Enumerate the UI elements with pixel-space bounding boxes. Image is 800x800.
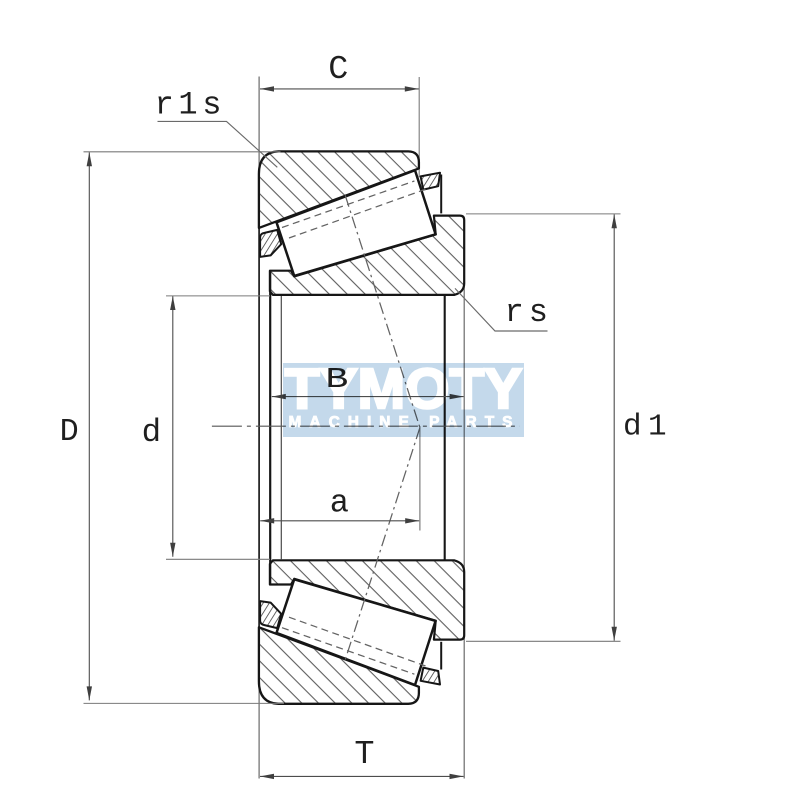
- svg-text:D: D: [60, 414, 79, 450]
- svg-text:T: T: [354, 736, 374, 774]
- svg-text:r1s: r1s: [155, 87, 226, 124]
- svg-text:a: a: [330, 484, 349, 521]
- svg-text:rs: rs: [505, 294, 553, 331]
- svg-text:d1: d1: [623, 410, 673, 445]
- svg-text:C: C: [328, 51, 348, 89]
- svg-text:d: d: [142, 414, 162, 451]
